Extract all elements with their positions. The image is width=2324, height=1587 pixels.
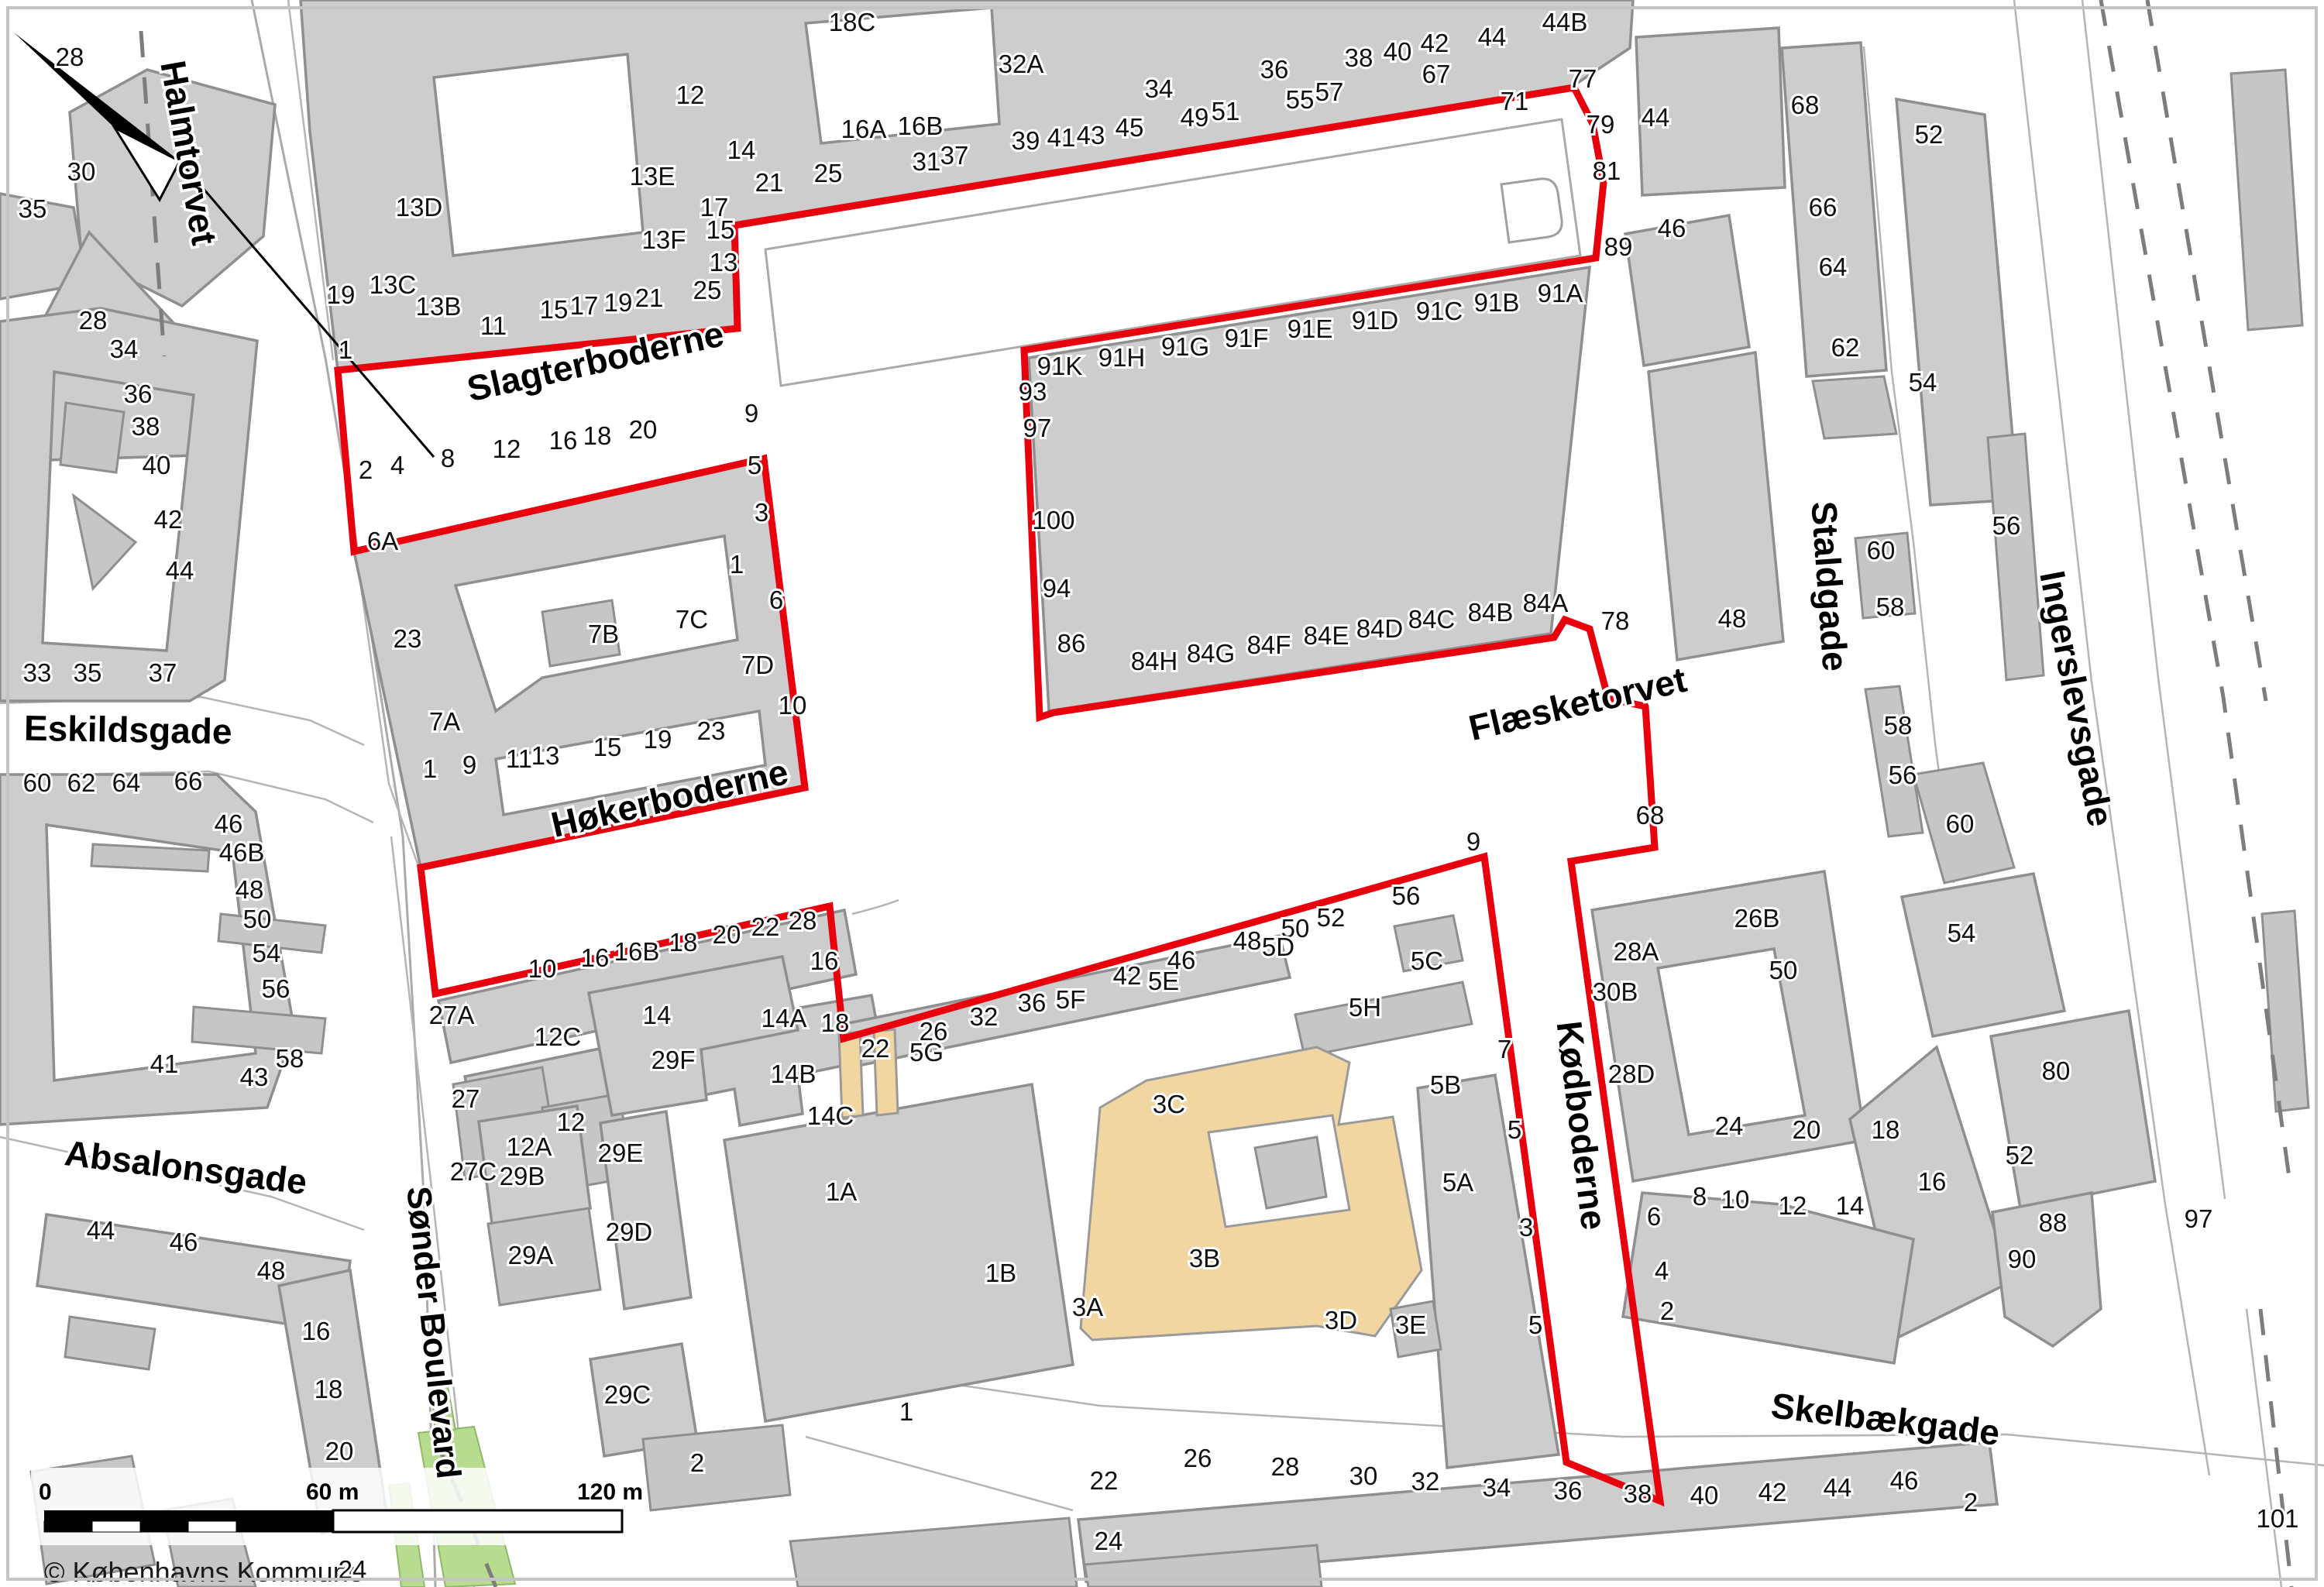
house-number-label: 28D	[1608, 1060, 1655, 1088]
house-number-label: 36	[1018, 988, 1047, 1017]
house-number-label: 5	[1508, 1115, 1521, 1144]
house-number-label: 62	[1831, 333, 1860, 362]
house-number-label: 79	[1587, 110, 1615, 139]
house-number-label: 91E	[1287, 314, 1333, 343]
house-number-label: 5D	[1262, 933, 1294, 961]
house-number-label: 5	[748, 451, 761, 479]
house-number-label: 14	[1836, 1191, 1865, 1220]
house-number-label: 84D	[1356, 614, 1404, 643]
house-number-label: 55	[1286, 85, 1315, 114]
house-number-label: 1	[899, 1397, 913, 1426]
house-number-label: 36	[1260, 55, 1289, 84]
house-number-label: 5	[1528, 1310, 1542, 1339]
house-number-label: 13	[531, 741, 560, 770]
house-number-label: 58	[276, 1044, 304, 1073]
house-number-label: 6	[769, 586, 783, 614]
house-number-label: 36	[124, 380, 153, 408]
house-number-label: 33	[23, 658, 52, 687]
house-number-label: 5H	[1349, 993, 1381, 1022]
house-number-label: 81	[1593, 156, 1621, 185]
scale-bar: 0 60 m 120 m	[31, 1468, 643, 1545]
house-number-label: 38	[1345, 43, 1373, 72]
house-number-label: 18C	[829, 8, 876, 36]
house-number-label: 25	[693, 276, 722, 304]
house-number-label: 20	[1793, 1115, 1821, 1144]
house-number-label: 57	[1315, 77, 1344, 106]
house-number-label: 32A	[999, 50, 1044, 78]
house-number-label: 18	[821, 1008, 850, 1037]
house-number-label: 46	[215, 809, 243, 838]
house-number-label: 84B	[1468, 598, 1514, 627]
house-number-label: 5C	[1411, 946, 1443, 975]
house-number-label: 34	[1145, 74, 1174, 103]
house-number-label: 6	[1647, 1202, 1661, 1231]
house-number-label: 13	[710, 248, 738, 277]
scale-60: 60 m	[306, 1479, 359, 1505]
house-number-label: 46	[1658, 214, 1686, 242]
house-number-label: 3	[1519, 1213, 1533, 1242]
house-number-label: 50	[243, 905, 272, 933]
house-number-label: 3A	[1072, 1293, 1103, 1321]
house-number-label: 16B	[614, 937, 660, 966]
house-number-label: 44	[1478, 22, 1507, 51]
house-number-label: 84F	[1247, 630, 1291, 659]
house-number-label: 31	[913, 147, 941, 176]
house-number-label: 41	[150, 1049, 179, 1078]
house-number-label: 91C	[1416, 297, 1463, 325]
house-number-label: 48	[1233, 926, 1262, 955]
house-number-label: 21	[755, 168, 784, 197]
house-number-label: 42	[154, 505, 183, 534]
house-number-label: 56	[1992, 511, 2021, 540]
house-number-label: 48	[235, 875, 264, 904]
house-number-label: 5F	[1056, 985, 1086, 1014]
house-number-label: 97	[1023, 414, 1052, 442]
house-number-label: 18	[315, 1375, 343, 1403]
house-number-label: 12	[493, 435, 521, 463]
house-number-label: 34	[1483, 1473, 1511, 1502]
house-number-label: 68	[1636, 801, 1665, 830]
house-number-label: 27	[452, 1084, 480, 1113]
house-number-label: 19	[604, 288, 633, 317]
house-number-label: 64	[112, 768, 141, 797]
house-number-label: 16	[581, 943, 610, 972]
house-number-label: 26	[1184, 1444, 1212, 1472]
house-number-label: 46B	[219, 838, 265, 867]
house-number-label: 3E	[1395, 1310, 1426, 1339]
house-number-label: 46	[170, 1228, 198, 1256]
scale-120: 120 m	[577, 1479, 643, 1505]
house-number-label: 28	[1271, 1452, 1300, 1481]
house-number-label: 10	[1721, 1185, 1750, 1214]
house-number-label: 58	[1876, 593, 1905, 621]
house-number-label: 21	[635, 283, 664, 312]
house-number-label: 15	[540, 295, 569, 324]
house-number-label: 27A	[429, 1001, 475, 1029]
house-number-label: 19	[644, 725, 672, 754]
house-number-label: 62	[67, 768, 96, 797]
house-number-label: 44	[87, 1216, 115, 1245]
house-number-label: 37	[149, 658, 177, 687]
house-number-label: 23	[697, 716, 726, 745]
house-number-label: 20	[325, 1437, 354, 1465]
house-number-label: 10	[528, 954, 557, 983]
house-number-label: 5B	[1430, 1070, 1461, 1099]
house-number-label: 8	[1693, 1182, 1707, 1211]
scale-0: 0	[39, 1479, 52, 1505]
house-number-label: 6A	[367, 527, 398, 555]
house-number-label: 13D	[396, 193, 443, 222]
house-number-label: 29E	[598, 1139, 644, 1167]
house-number-label: 28	[79, 306, 108, 335]
house-number-label: 36	[1554, 1476, 1583, 1505]
house-number-label: 14C	[807, 1101, 854, 1130]
street-name-label: Eskildsgade	[24, 708, 232, 752]
house-number-label: 29A	[508, 1241, 554, 1269]
house-number-label: 90	[2008, 1245, 2037, 1273]
house-number-label: 7D	[741, 651, 774, 679]
house-number-label: 52	[1317, 903, 1346, 932]
house-number-label: 80	[2042, 1056, 2071, 1085]
house-number-label: 68	[1791, 91, 1820, 119]
house-number-label: 88	[2039, 1208, 2068, 1237]
house-number-label: 44	[166, 556, 194, 585]
house-number-label: 91K	[1037, 352, 1083, 380]
house-number-label: 49	[1181, 103, 1209, 132]
house-number-label: 91G	[1161, 332, 1209, 361]
house-number-label: 94	[1043, 574, 1071, 603]
house-number-label: 60	[1946, 809, 1975, 838]
house-number-label: 22	[1090, 1466, 1119, 1495]
house-number-label: 52	[1915, 120, 1944, 149]
house-number-label: 29F	[651, 1046, 696, 1074]
house-number-label: 71	[1501, 87, 1529, 115]
house-number-label: 5E	[1148, 967, 1179, 995]
house-number-label: 41	[1047, 123, 1076, 152]
house-number-label: 5G	[909, 1038, 944, 1067]
house-number-label: 84C	[1408, 605, 1456, 634]
house-number-label: 97	[2185, 1204, 2213, 1233]
house-number-label: 44	[1642, 103, 1670, 132]
house-number-label: 9	[744, 399, 758, 428]
house-number-label: 16	[810, 946, 839, 975]
house-number-label: 39	[1012, 126, 1040, 155]
house-number-label: 14A	[761, 1004, 807, 1032]
house-number-label: 16B	[898, 112, 944, 140]
house-number-label: 12C	[535, 1022, 582, 1051]
house-number-label: 14	[643, 1001, 672, 1029]
house-number-label: 13C	[370, 270, 417, 299]
house-number-label: 16	[302, 1317, 331, 1345]
house-number-label: 12	[1779, 1191, 1807, 1220]
house-number-label: 66	[1809, 193, 1838, 222]
house-number-label: 50	[1769, 956, 1798, 984]
house-number-label: 20	[629, 415, 658, 444]
house-number-label: 5A	[1442, 1168, 1473, 1197]
house-number-label: 20	[713, 920, 741, 949]
house-number-label: 4	[1655, 1256, 1669, 1285]
house-number-label: 12A	[507, 1132, 552, 1161]
house-number-label: 42	[1758, 1478, 1787, 1506]
house-number-label: 84G	[1187, 639, 1235, 668]
house-number-label: 14B	[771, 1060, 816, 1088]
house-number-label: 58	[1884, 711, 1913, 740]
house-number-label: 29B	[500, 1162, 545, 1190]
house-number-label: 1	[339, 335, 352, 364]
house-number-label: 91F	[1225, 324, 1269, 352]
house-number-label: 32	[970, 1002, 999, 1031]
house-number-label: 16	[549, 426, 578, 455]
house-number-label: 84H	[1131, 647, 1178, 675]
house-number-label: 42	[1421, 29, 1449, 57]
house-number-label: 7B	[588, 620, 619, 648]
house-number-label: 7	[1497, 1035, 1511, 1063]
house-number-label: 101	[2256, 1504, 2298, 1533]
house-number-label: 84E	[1304, 621, 1349, 650]
house-number-label: 2	[690, 1448, 704, 1477]
house-number-label: 1A	[826, 1177, 857, 1206]
house-number-label: 10	[779, 691, 807, 720]
house-number-label: 42	[1113, 961, 1142, 990]
house-number-label: 12	[557, 1108, 586, 1136]
house-number-label: 38	[1624, 1479, 1652, 1508]
house-number-label: 84A	[1523, 589, 1569, 617]
house-number-label: 64	[1819, 252, 1848, 281]
house-number-label: 18	[583, 421, 612, 450]
house-number-label: 17	[570, 291, 599, 320]
house-number-label: 9	[462, 751, 476, 779]
house-number-label: 16	[1918, 1167, 1947, 1196]
house-number-label: 16A	[841, 115, 887, 143]
house-number-label: 56	[1889, 761, 1917, 789]
house-number-label: 100	[1032, 506, 1074, 534]
house-number-label: 60	[1867, 536, 1896, 565]
house-number-label: 35	[74, 658, 102, 687]
house-number-label: 13E	[630, 162, 676, 191]
house-number-label: 40	[143, 451, 171, 479]
house-number-label: 29C	[604, 1380, 651, 1409]
house-number-label: 91A	[1538, 279, 1583, 307]
house-number-label: 52	[2006, 1141, 2034, 1170]
house-number-label: 14	[727, 136, 756, 164]
house-number-label: 86	[1057, 629, 1086, 658]
house-number-label: 2	[1660, 1297, 1674, 1325]
house-number-label: 15	[706, 215, 735, 244]
house-number-label: 2	[359, 455, 373, 484]
house-number-label: 48	[257, 1256, 286, 1285]
house-number-label: 3	[755, 498, 768, 527]
house-number-label: 15	[593, 733, 622, 761]
house-number-label: 40	[1384, 37, 1412, 66]
copyright-text: © Københavns Kommune	[44, 1556, 364, 1587]
house-number-label: 91B	[1474, 288, 1520, 317]
house-number-label: 43	[1077, 121, 1105, 149]
house-number-label: 44	[1824, 1473, 1852, 1502]
house-number-label: 91D	[1352, 306, 1399, 335]
house-number-label: 46	[1890, 1466, 1919, 1495]
house-number-label: 13B	[416, 292, 462, 321]
house-number-label: 28	[789, 906, 817, 935]
house-number-label: 32	[1411, 1467, 1440, 1496]
house-number-label: 3B	[1189, 1244, 1220, 1273]
house-number-label: 3C	[1153, 1090, 1185, 1118]
house-number-label: 54	[1909, 368, 1937, 397]
house-number-label: 30B	[1593, 977, 1638, 1006]
map-canvas[interactable]: 0 60 m 120 m © Københavns Kommune 283035…	[0, 0, 2324, 1587]
house-number-label: 78	[1601, 606, 1630, 635]
house-number-label: 26B	[1734, 904, 1780, 933]
house-number-label: 11	[506, 744, 532, 773]
house-number-label: 4	[390, 451, 404, 479]
house-number-label: 54	[253, 939, 281, 967]
house-number-label: 28	[56, 43, 84, 71]
house-number-label: 24	[1095, 1527, 1123, 1555]
house-number-label: 43	[240, 1063, 269, 1091]
house-number-label: 13F	[642, 225, 686, 254]
house-number-label: 19	[327, 280, 356, 309]
house-number-label: 11	[480, 311, 507, 340]
house-number-label: 48	[1718, 604, 1747, 633]
house-number-label: 22	[751, 912, 780, 941]
house-number-label: 2	[1964, 1488, 1978, 1517]
house-number-label: 77	[1569, 64, 1597, 93]
house-number-label: 56	[262, 974, 290, 1003]
house-number-label: 35	[19, 194, 47, 223]
house-number-label: 91H	[1098, 343, 1146, 372]
house-number-label: 24	[1715, 1111, 1744, 1140]
house-number-label: 18	[1872, 1115, 1900, 1144]
house-number-label: 3D	[1325, 1306, 1357, 1335]
house-number-label: 67	[1422, 60, 1451, 88]
house-number-label: 66	[174, 767, 203, 795]
house-number-label: 30	[67, 157, 96, 186]
house-number-label: 22	[861, 1034, 890, 1063]
house-number-label: 1B	[985, 1259, 1016, 1287]
house-number-label: 7C	[676, 605, 708, 634]
house-number-label: 18	[669, 928, 698, 957]
house-number-label: 1	[730, 550, 744, 579]
house-number-label: 60	[23, 768, 52, 797]
house-number-label: 45	[1116, 113, 1144, 142]
house-number-label: 8	[441, 444, 455, 472]
house-number-label: 1	[423, 754, 437, 783]
house-number-label: 9	[1466, 827, 1480, 856]
house-number-label: 28A	[1614, 937, 1659, 966]
house-number-label: 38	[132, 412, 160, 441]
house-number-label: 40	[1690, 1481, 1719, 1510]
house-number-label: 44B	[1542, 8, 1588, 36]
house-number-label: 51	[1212, 97, 1240, 125]
house-number-label: 30	[1349, 1462, 1378, 1490]
house-number-label: 12	[676, 81, 705, 109]
house-number-label: 34	[110, 335, 139, 363]
house-number-label: 93	[1019, 377, 1047, 406]
house-number-label: 7A	[429, 707, 460, 736]
house-number-label: 27C	[450, 1157, 497, 1186]
house-number-label: 89	[1604, 232, 1633, 261]
house-number-label: 37	[940, 141, 969, 170]
house-number-label: 25	[814, 159, 843, 187]
house-number-label: 29D	[606, 1218, 653, 1246]
house-number-label: 56	[1392, 881, 1421, 910]
house-number-label: 23	[394, 624, 422, 653]
house-number-label: 54	[1948, 919, 1976, 947]
